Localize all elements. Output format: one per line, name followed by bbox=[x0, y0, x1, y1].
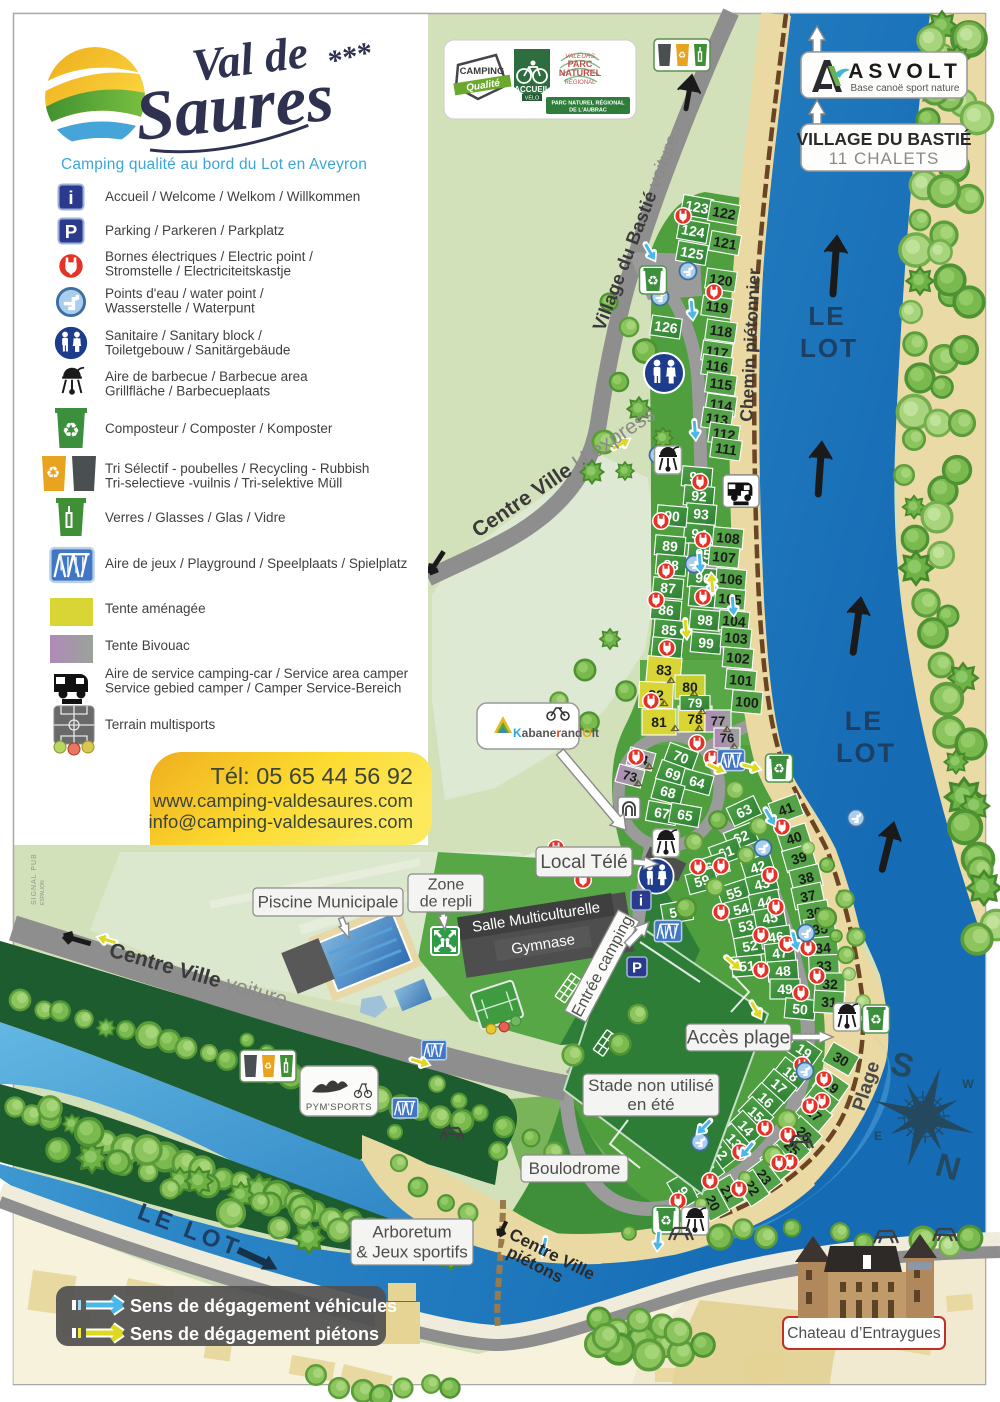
svg-text:Piscine Municipale: Piscine Municipale bbox=[258, 892, 399, 911]
svg-text:www.camping-valdesaures.com: www.camping-valdesaures.com bbox=[152, 790, 413, 811]
svg-text:48: 48 bbox=[775, 962, 792, 979]
svg-text:Grillfläche / Barbecueplaats: Grillfläche / Barbecueplaats bbox=[105, 384, 270, 399]
svg-text:ESPALION: ESPALION bbox=[40, 880, 46, 905]
svg-text:PARC NATUREL RÉGIONAL: PARC NATUREL RÉGIONAL bbox=[551, 99, 625, 107]
svg-text:CAMPING: CAMPING bbox=[460, 66, 505, 77]
svg-text:Arboretum: Arboretum bbox=[372, 1223, 451, 1242]
svg-text:Tél: 05 65 44 56 92: Tél: 05 65 44 56 92 bbox=[210, 763, 413, 789]
svg-text:W: W bbox=[962, 1077, 974, 1091]
svg-text:LOT: LOT bbox=[800, 333, 858, 363]
svg-text:de repli: de repli bbox=[420, 893, 472, 910]
svg-text:Tri-selectieve -vuilnis / Tri-: Tri-selectieve -vuilnis / Tri-selektive … bbox=[105, 476, 342, 491]
svg-text:126: 126 bbox=[653, 317, 679, 336]
svg-text:Sens de dégagement piétons: Sens de dégagement piétons bbox=[130, 1324, 379, 1344]
svg-text:101: 101 bbox=[729, 671, 754, 689]
svg-text:en été: en été bbox=[627, 1095, 674, 1114]
svg-text:NATUREL: NATUREL bbox=[559, 68, 602, 78]
svg-text:81: 81 bbox=[651, 714, 667, 730]
svg-text:89: 89 bbox=[662, 537, 679, 554]
svg-text:Tente Bivouac: Tente Bivouac bbox=[105, 638, 190, 653]
svg-text:49: 49 bbox=[777, 981, 793, 997]
svg-text:VÉLO: VÉLO bbox=[525, 95, 540, 102]
svg-text:Camping qualité au bord du Lot: Camping qualité au bord du Lot en Aveyro… bbox=[61, 156, 367, 173]
svg-text:Tente aménagée: Tente aménagée bbox=[105, 601, 206, 616]
svg-text:118: 118 bbox=[709, 322, 734, 341]
svg-text:ASVOLT: ASVOLT bbox=[848, 60, 962, 83]
svg-text:♻: ♻ bbox=[62, 420, 80, 442]
svg-text:♻: ♻ bbox=[46, 465, 60, 482]
svg-text:106: 106 bbox=[719, 570, 744, 588]
svg-text:99: 99 bbox=[698, 634, 715, 651]
svg-text:Verres / Glasses / Glas / Vidr: Verres / Glasses / Glas / Vidre bbox=[105, 510, 286, 525]
svg-text:102: 102 bbox=[726, 649, 751, 667]
svg-text:Parking / Parkeren / Parkplatz: Parking / Parkeren / Parkplatz bbox=[105, 223, 285, 238]
svg-text:Zone: Zone bbox=[428, 876, 465, 893]
svg-text:VILLAGE DU BASTIÉ: VILLAGE DU BASTIÉ bbox=[796, 128, 971, 149]
svg-text:Sanitaire / Sanitary block /: Sanitaire / Sanitary block / bbox=[105, 328, 262, 343]
svg-text:77: 77 bbox=[711, 714, 725, 729]
svg-text:100: 100 bbox=[735, 693, 760, 711]
svg-text:PYM'SPORTS: PYM'SPORTS bbox=[306, 1102, 372, 1113]
svg-text:Service gebied camper / Camper: Service gebied camper / Camper Service-B… bbox=[105, 681, 401, 696]
svg-text:Wasserstelle / Waterpunt: Wasserstelle / Waterpunt bbox=[105, 301, 255, 316]
svg-text:Aire de barbecue / Barbecue ar: Aire de barbecue / Barbecue area bbox=[105, 369, 308, 384]
svg-text:34: 34 bbox=[815, 939, 832, 956]
svg-text:& Jeux sportifs: & Jeux sportifs bbox=[356, 1243, 468, 1262]
svg-text:Sens de dégagement véhicules: Sens de dégagement véhicules bbox=[130, 1296, 397, 1316]
svg-text:Accès plage: Accès plage bbox=[687, 1028, 791, 1049]
svg-text:Local Télé: Local Télé bbox=[540, 852, 627, 873]
svg-text:76: 76 bbox=[720, 731, 734, 746]
svg-text:SIGNAL PUB: SIGNAL PUB bbox=[31, 853, 38, 905]
svg-text:83: 83 bbox=[656, 661, 673, 678]
svg-text:Aire de jeux / Playground / Sp: Aire de jeux / Playground / Speelplaats … bbox=[105, 556, 408, 571]
svg-text:Toiletgebouw / Sanitärgebäude: Toiletgebouw / Sanitärgebäude bbox=[105, 343, 290, 358]
svg-text:93: 93 bbox=[693, 505, 710, 522]
svg-text:11 CHALETS: 11 CHALETS bbox=[829, 149, 940, 168]
svg-text:115: 115 bbox=[709, 375, 734, 394]
svg-text:info@camping-valdesaures.com: info@camping-valdesaures.com bbox=[148, 811, 413, 832]
svg-text:Base canoë sport nature: Base canoë sport nature bbox=[851, 83, 960, 94]
svg-text:LE: LE bbox=[845, 706, 884, 736]
svg-text:LOT: LOT bbox=[836, 738, 896, 768]
svg-text:108: 108 bbox=[716, 529, 741, 547]
svg-text:LE: LE bbox=[808, 301, 845, 331]
svg-text:107: 107 bbox=[712, 548, 737, 566]
svg-text:65: 65 bbox=[676, 806, 694, 824]
svg-text:KabanerandOlt: KabanerandOlt bbox=[513, 726, 599, 740]
svg-text:111: 111 bbox=[714, 440, 738, 459]
svg-text:RÉGIONAL: RÉGIONAL bbox=[564, 79, 596, 86]
svg-text:Points d'eau / water point /: Points d'eau / water point / bbox=[105, 286, 264, 301]
svg-text:Aire de service camping-car /: Aire de service camping-car / Service ar… bbox=[105, 666, 409, 681]
svg-text:Terrain multisports: Terrain multisports bbox=[105, 717, 216, 732]
svg-text:Composteur / Composter / Kompo: Composteur / Composter / Komposter bbox=[105, 421, 333, 436]
svg-text:Tri Sélectif - poubelles / Rec: Tri Sélectif - poubelles / Recycling - R… bbox=[105, 461, 369, 476]
svg-text:Bornes électriques / Electric: Bornes électriques / Electric point / bbox=[105, 249, 313, 264]
svg-text:50: 50 bbox=[792, 1000, 809, 1017]
svg-text:Boulodrome: Boulodrome bbox=[529, 1159, 621, 1178]
svg-text:Stromstelle / Electriciteitska: Stromstelle / Electriciteitskastje bbox=[105, 264, 291, 279]
svg-text:98: 98 bbox=[697, 611, 714, 628]
svg-text:Chateau d’Entraygues: Chateau d’Entraygues bbox=[787, 1325, 941, 1342]
svg-text:103: 103 bbox=[724, 629, 749, 647]
svg-text:Accueil / Welcome / Welkom / W: Accueil / Welcome / Welkom / Willkommen bbox=[105, 189, 360, 204]
svg-text:DE L'AUBRAC: DE L'AUBRAC bbox=[569, 108, 607, 114]
svg-text:Stade non utilisé: Stade non utilisé bbox=[588, 1076, 714, 1095]
svg-text:79: 79 bbox=[688, 696, 702, 711]
svg-text:85: 85 bbox=[661, 621, 678, 638]
svg-text:ACCUEIL: ACCUEIL bbox=[514, 85, 550, 94]
svg-text:E: E bbox=[874, 1129, 882, 1143]
